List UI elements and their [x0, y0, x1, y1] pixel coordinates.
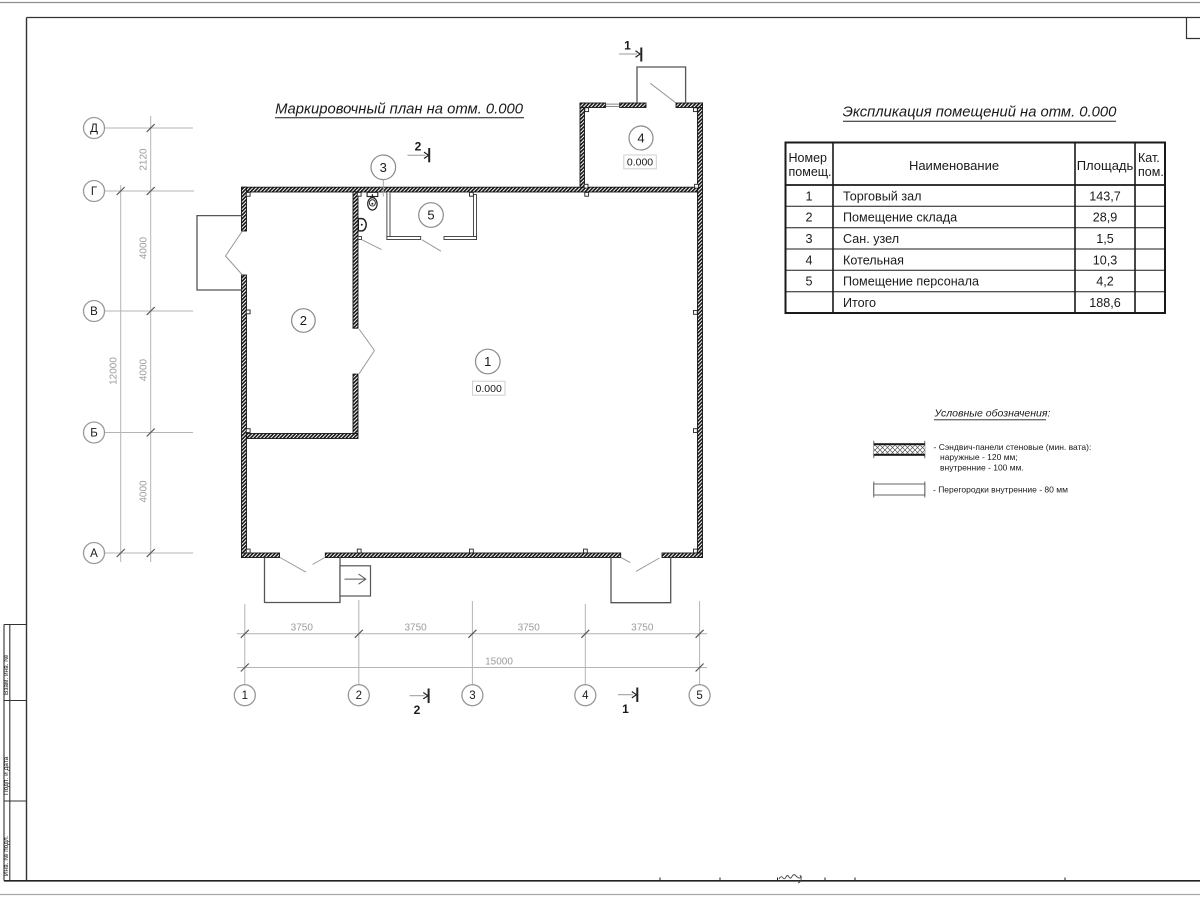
svg-text:3750: 3750 [291, 623, 314, 634]
svg-text:10,3: 10,3 [1093, 253, 1118, 267]
svg-text:Сан. узел: Сан. узел [843, 232, 899, 246]
svg-text:Кат.: Кат. [1138, 151, 1160, 165]
svg-text:4: 4 [582, 690, 589, 702]
svg-text:Д: Д [90, 123, 98, 135]
svg-text:12000: 12000 [109, 357, 120, 385]
svg-text:Итого: Итого [843, 296, 876, 310]
svg-text:2120: 2120 [139, 148, 150, 171]
svg-text:Г: Г [91, 186, 98, 198]
svg-text:пом.: пом. [1138, 165, 1164, 179]
svg-text:4: 4 [805, 253, 812, 267]
svg-text:143,7: 143,7 [1089, 189, 1121, 203]
svg-text:Наименование: Наименование [909, 158, 999, 173]
svg-text:В: В [90, 306, 98, 318]
svg-text:наружные - 120 мм;: наружные - 120 мм; [940, 452, 1018, 462]
svg-text:Площадь: Площадь [1077, 158, 1134, 173]
svg-text:Взам. инв. №: Взам. инв. № [3, 655, 10, 695]
svg-text:Помещение персонала: Помещение персонала [843, 275, 979, 289]
svg-text:0.000: 0.000 [627, 157, 653, 169]
svg-text:4000: 4000 [139, 236, 150, 259]
svg-text:Помещение склада: Помещение склада [843, 211, 957, 225]
svg-text:1: 1 [484, 354, 491, 369]
svg-text:1,5: 1,5 [1096, 232, 1114, 246]
svg-text:1: 1 [805, 189, 812, 203]
svg-text:5: 5 [427, 208, 434, 223]
svg-text:Инв. № подл.: Инв. № подл. [3, 835, 10, 876]
svg-text:Подп. и дата: Подп. и дата [3, 756, 10, 795]
svg-text:4000: 4000 [139, 358, 150, 381]
svg-text:Б: Б [90, 428, 98, 440]
svg-text:Маркировочный план на отм. 0.0: Маркировочный план на отм. 0.000 [275, 102, 524, 118]
svg-text:2: 2 [414, 703, 421, 717]
svg-text:помещ.: помещ. [789, 165, 832, 179]
svg-text:2: 2 [415, 140, 422, 154]
svg-text:4000: 4000 [139, 480, 150, 503]
svg-text:2: 2 [300, 313, 307, 328]
svg-text:1: 1 [242, 690, 248, 702]
svg-text:4: 4 [637, 131, 644, 146]
svg-text:2: 2 [805, 211, 812, 225]
svg-text:3750: 3750 [631, 623, 654, 634]
svg-text:15000: 15000 [485, 657, 513, 668]
svg-text:3: 3 [805, 232, 812, 246]
svg-text:внутренние - 100 мм.: внутренние - 100 мм. [940, 462, 1024, 472]
svg-text:3750: 3750 [518, 623, 541, 634]
svg-text:3750: 3750 [404, 623, 427, 634]
svg-text:3: 3 [380, 160, 387, 175]
svg-text:1: 1 [624, 39, 631, 53]
svg-text:Котельная: Котельная [843, 253, 904, 267]
svg-text:5: 5 [696, 690, 702, 702]
svg-text:2: 2 [356, 690, 362, 702]
svg-text:0.000: 0.000 [476, 383, 502, 395]
svg-text:- Перегородки внутренние - 80: - Перегородки внутренние - 80 мм [933, 485, 1068, 495]
svg-text:Экспликация помещений на отм.: Экспликация помещений на отм. 0.000 [843, 104, 1117, 120]
svg-text:28,9: 28,9 [1093, 211, 1118, 225]
svg-text:4,2: 4,2 [1096, 275, 1114, 289]
svg-text:Торговый зал: Торговый зал [843, 189, 921, 203]
svg-text:1: 1 [622, 702, 629, 716]
svg-text:3: 3 [469, 690, 475, 702]
svg-text:Номер: Номер [789, 151, 828, 165]
svg-text:А: А [90, 548, 98, 560]
svg-text:- Сэндвич-панели стеновые (мин: - Сэндвич-панели стеновые (мин. вата): [934, 442, 1092, 452]
svg-text:5: 5 [805, 275, 812, 289]
svg-text:188,6: 188,6 [1089, 296, 1121, 310]
svg-text:Условные обозначения:: Условные обозначения: [934, 408, 1051, 420]
